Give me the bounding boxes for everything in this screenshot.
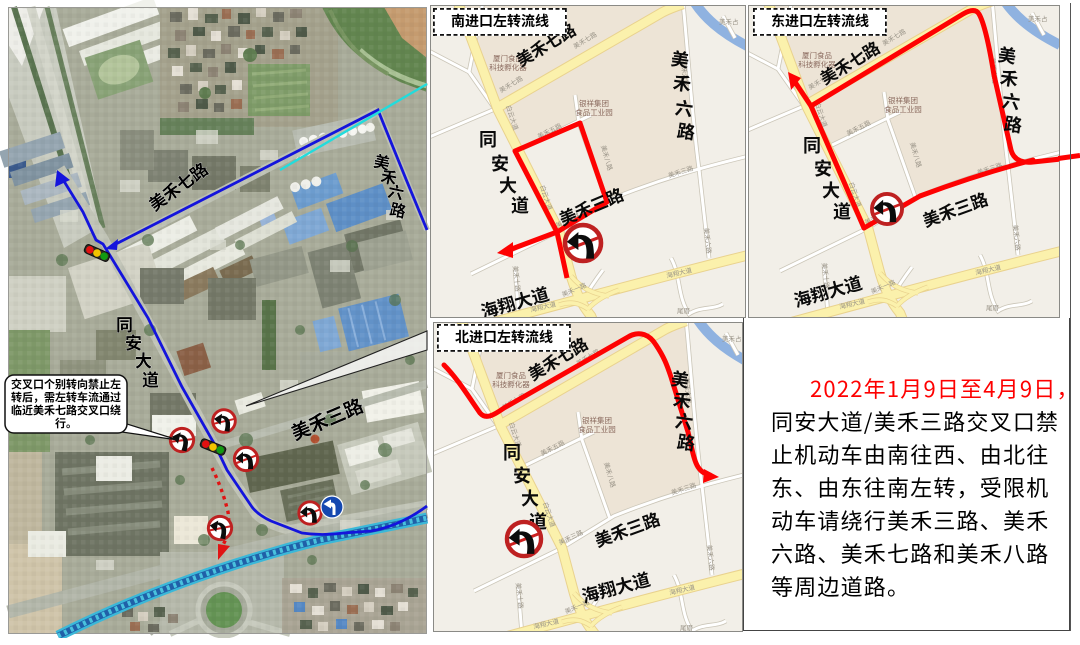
svg-text:道: 道 (142, 366, 159, 391)
svg-text:行。: 行。 (55, 415, 77, 431)
